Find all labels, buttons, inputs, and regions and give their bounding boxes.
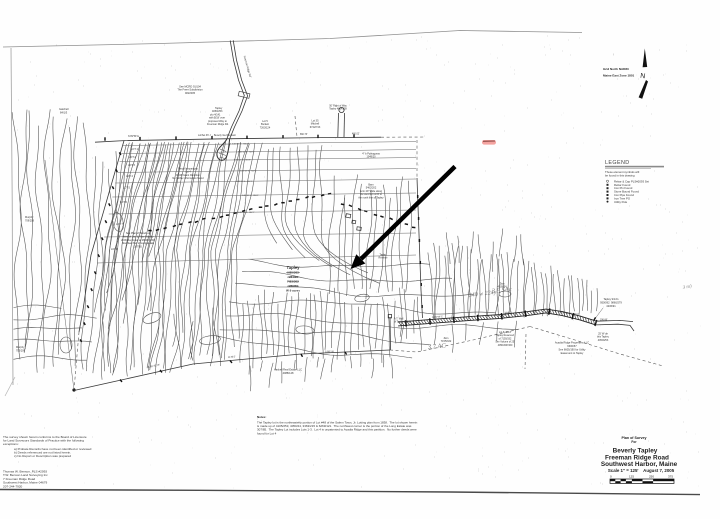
svg-text:Tapley 9/14's: Tapley 9/14's xyxy=(603,297,619,301)
svg-text:Freeman Ridge Rd.: Freeman Ridge Rd. xyxy=(207,123,229,126)
svg-text:6742/743: 6742/743 xyxy=(310,126,321,129)
svg-text:307/85: 307/85 xyxy=(134,246,142,249)
svg-text:7263/124: 7263/124 xyxy=(260,126,271,129)
svg-text:the north line of Tapley: the north line of Tapley xyxy=(358,196,384,199)
svg-text:4050/253: 4050/253 xyxy=(598,339,609,342)
svg-text:N 89°59' E 936.5': N 89°59' E 936.5' xyxy=(232,144,249,146)
svg-text:found for Lot 4: found for Lot 4 xyxy=(257,431,277,435)
svg-text:460.02': 460.02' xyxy=(352,134,360,136)
svg-text:Lot/Set 36' J - Beverly line: Lot/Set 36' J - Beverly line Remnant xyxy=(198,134,236,137)
svg-text:Tapley: Tapley xyxy=(287,265,301,270)
svg-text:660.73': 660.73' xyxy=(300,134,308,136)
svg-text:No further information found: No further information found xyxy=(172,177,204,180)
svg-text:LOT 6: LOT 6 xyxy=(120,201,128,204)
svg-text:709/209: 709/209 xyxy=(25,219,35,222)
svg-text:264.6': 264.6' xyxy=(505,312,512,314)
svg-text:Haskell Real Estate LLC: Haskell Real Estate LLC xyxy=(274,368,302,372)
svg-text:N 89°59' E 927.2': N 89°59' E 927.2' xyxy=(238,152,255,154)
svg-text:307/85. The Tapley Lot includ: 307/85. The Tapley Lot includes Lots 1-3… xyxy=(257,428,417,432)
svg-text:Acadia Ridge Properties, LLC: Acadia Ridge Properties, LLC xyxy=(555,341,589,345)
svg-text:N 89°59' E 867.7': N 89°59' E 867.7' xyxy=(238,212,255,214)
svg-text:Gatchell: Gatchell xyxy=(59,107,69,111)
svg-text:W 9 acres: W 9 acres xyxy=(286,289,300,293)
svg-text:N: N xyxy=(640,73,646,81)
svg-text:6600/57: 6600/57 xyxy=(567,344,577,348)
svg-text:4050/308 660: 4050/308 660 xyxy=(498,344,513,347)
svg-text:LEGEND: LEGEND xyxy=(605,160,630,166)
svg-text:N 89°59' E 918.8': N 89°59' E 918.8' xyxy=(234,160,251,162)
svg-text:9500/92 9860/279: 9500/92 9860/279 xyxy=(600,301,622,305)
svg-text:c) No Report or Description wa: c) No Report or Description was prepared xyxy=(14,454,71,458)
svg-text:Beverly Tapley: Beverly Tapley xyxy=(613,448,658,455)
svg-text:Scale 1" = 125' August 7, 2: Scale 1" = 125' August 7, 2005 xyxy=(608,468,675,473)
svg-text:Easement to Tapley: Easement to Tapley xyxy=(561,351,584,355)
svg-text:LOT 3: LOT 3 xyxy=(128,164,136,167)
svg-text:Southwest Harbor, Maine: Southwest Harbor, Maine xyxy=(601,461,678,468)
svg-text:125: 125 xyxy=(629,475,634,479)
svg-text:1049/20: 1049/20 xyxy=(366,156,376,159)
svg-text:N 89°59' E 907.4': N 89°59' E 907.4' xyxy=(240,171,257,173)
svg-text:4088/148: 4088/148 xyxy=(283,371,294,375)
svg-text:Tapley 4604/159: Tapley 4604/159 xyxy=(329,108,347,111)
svg-text:207-244-7920: 207-244-7920 xyxy=(3,484,23,488)
svg-text:LOT 5: LOT 5 xyxy=(123,187,131,190)
svg-text:4236/91: 4236/91 xyxy=(606,304,616,308)
svg-text:Notes:: Notes: xyxy=(257,415,266,419)
svg-text:be found in this drawing: be found in this drawing xyxy=(605,174,635,178)
svg-text:196.66': 196.66' xyxy=(600,320,608,322)
svg-text:For: For xyxy=(631,440,637,444)
svg-text:LOT 2: LOT 2 xyxy=(129,156,137,159)
svg-text:N 89°59' E 897.9': N 89°59' E 897.9' xyxy=(236,181,253,183)
svg-text:LOT 8: LOT 8 xyxy=(111,248,119,251)
svg-text:Utility Pole: Utility Pole xyxy=(614,200,628,204)
svg-text:375: 375 xyxy=(668,475,673,479)
svg-text:S 89° W: S 89° W xyxy=(325,350,335,353)
svg-text:84/1/3: 84/1/3 xyxy=(60,110,68,114)
svg-text:N 89°59' E 884.2': N 89°59' E 884.2' xyxy=(242,195,259,197)
svg-text:LOT 4: LOT 4 xyxy=(126,175,134,178)
svg-text:Maine East Zone 1801: Maine East Zone 1801 xyxy=(603,74,635,78)
svg-text:LOT 7: LOT 7 xyxy=(116,223,124,226)
svg-text:of Tapley 983/2: of Tapley 983/2 xyxy=(394,321,411,324)
svg-text:9/9/2005: 9/9/2005 xyxy=(185,91,196,95)
svg-text:Reserve: Reserve xyxy=(379,257,389,260)
svg-text:See 6605/190 for Utility: See 6605/190 for Utility xyxy=(559,348,587,352)
svg-text:Grid North NAD83: Grid North NAD83 xyxy=(603,67,629,71)
svg-text:705/209: 705/209 xyxy=(16,349,26,352)
svg-text:LOT 1: LOT 1 xyxy=(131,148,139,151)
svg-text:N 89°59' E: N 89°59' E xyxy=(128,136,139,138)
svg-text:exceptions:: exceptions: xyxy=(3,442,19,446)
svg-text:250: 250 xyxy=(649,475,654,479)
